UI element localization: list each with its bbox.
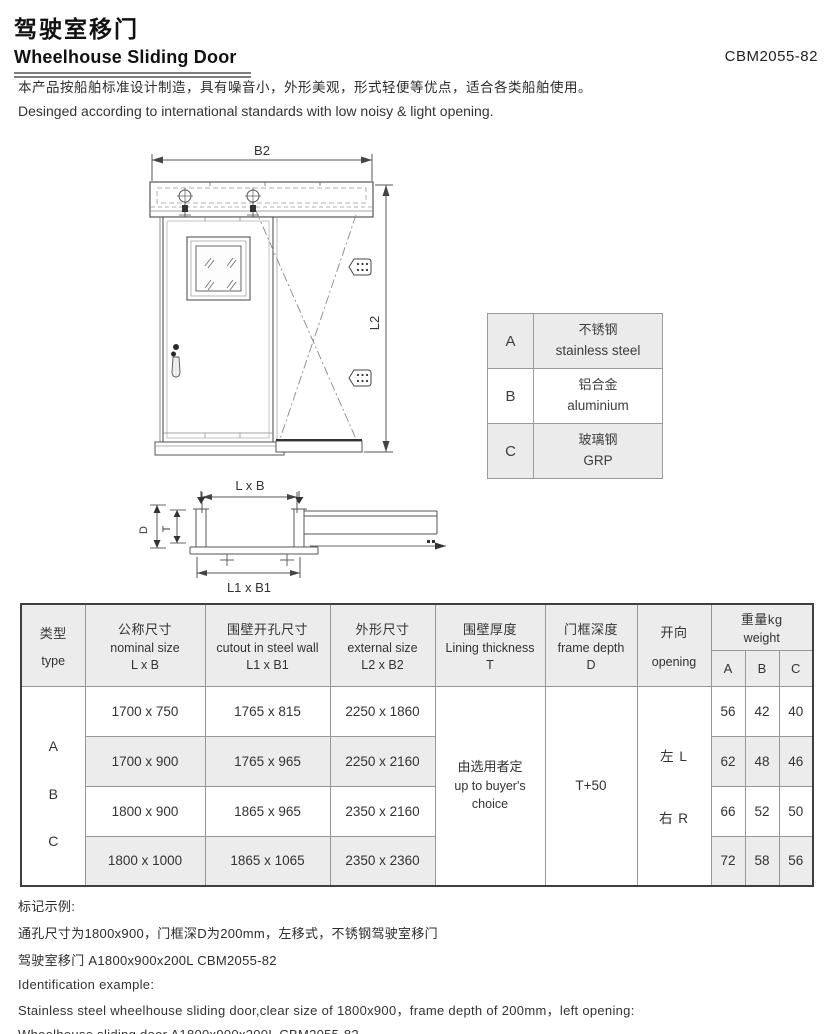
cell-external: 2250 x 1860 <box>330 686 435 736</box>
cell-nominal: 1800 x 900 <box>85 786 205 836</box>
page-header: 驾驶室移门 Wheelhouse Sliding Door <box>14 10 251 78</box>
cell-weight-a: 56 <box>711 686 745 736</box>
frame-depth-cell: T+50 <box>545 686 637 886</box>
note-en-title: Identification example: <box>18 977 818 992</box>
cell-weight-c: 46 <box>779 736 813 786</box>
spec-row-1: A B C 1700 x 750 1765 x 815 2250 x 1860 … <box>21 686 813 736</box>
b2-label: B2 <box>254 145 270 158</box>
cell-weight-b: 58 <box>745 836 779 886</box>
col-header-opening: 开向 opening <box>637 604 711 686</box>
note-zh-line1: 通孔尺寸为1800x900，门框深D为200mm，左移式，不锈钢驾驶室移门 <box>18 923 818 942</box>
cell-weight-b: 42 <box>745 686 779 736</box>
material-row-b: B 铝合金 aluminium <box>488 369 663 424</box>
col-header-weight: 重量kg weight <box>711 604 813 650</box>
col-header-nominal: 公称尺寸 nominal size L x B <box>85 604 205 686</box>
material-key: A <box>488 314 534 369</box>
col-header-weight-a: A <box>711 650 745 686</box>
b2-dimension <box>152 154 372 181</box>
lxb-label: L x B <box>235 478 264 493</box>
cell-external: 2350 x 2160 <box>330 786 435 836</box>
spec-table: 类型 type 公称尺寸 nominal size L x B 围壁开孔尺寸 c… <box>20 603 814 887</box>
material-name-en: stainless steel <box>534 341 662 362</box>
material-name-zh: 不锈钢 <box>534 320 662 340</box>
d-label: D <box>138 526 150 534</box>
opening-left: 左 L <box>638 745 711 765</box>
material-row-a: A 不锈钢 stainless steel <box>488 314 663 369</box>
opening-right: 右 R <box>638 807 711 827</box>
material-name: 铝合金 aluminium <box>534 369 663 424</box>
cell-weight-b: 52 <box>745 786 779 836</box>
note-en-line2: Wheelhouse sliding door A1800x900x200L C… <box>18 1027 818 1034</box>
cell-weight-a: 66 <box>711 786 745 836</box>
lining-thickness-cell: 由选用者定 up to buyer's choice <box>435 686 545 886</box>
note-zh-line2: 驾驶室移门 A1800x900x200L CBM2055-82 <box>18 950 818 969</box>
cell-weight-a: 62 <box>711 736 745 786</box>
description-zh: 本产品按船舶标准设计制造，具有噪音小，外形美观，形式轻便等优点，适合各类船舶使用… <box>18 76 808 96</box>
type-c: C <box>22 833 85 849</box>
wall-clip <box>349 259 371 275</box>
material-name: 玻璃钢 GRP <box>534 424 663 479</box>
material-name: 不锈钢 stainless steel <box>534 314 663 369</box>
cell-weight-a: 72 <box>711 836 745 886</box>
type-column: A B C <box>21 686 85 886</box>
cell-weight-c: 50 <box>779 786 813 836</box>
cell-weight-c: 56 <box>779 836 813 886</box>
material-name-en: GRP <box>534 451 662 472</box>
cross-section: L x B <box>138 478 446 595</box>
product-description: 本产品按船舶标准设计制造，具有噪音小，外形美观，形式轻便等优点，适合各类船舶使用… <box>18 76 808 119</box>
cell-nominal: 1700 x 900 <box>85 736 205 786</box>
cell-cutout: 1865 x 1065 <box>205 836 330 886</box>
standard-code: CBM2055-82 <box>725 48 818 65</box>
material-key: C <box>488 424 534 479</box>
material-table: A 不锈钢 stainless steel B 铝合金 aluminium C … <box>487 313 663 479</box>
l1xb1-label: L1 x B1 <box>227 580 271 595</box>
page-title-en: Wheelhouse Sliding Door <box>14 47 251 68</box>
material-name-en: aluminium <box>534 396 662 417</box>
cell-weight-b: 48 <box>745 736 779 786</box>
material-row-c: C 玻璃钢 GRP <box>488 424 663 479</box>
material-key: B <box>488 369 534 424</box>
note-zh-title: 标记示例: <box>18 896 818 915</box>
wall-clip <box>349 370 371 386</box>
material-name-zh: 玻璃钢 <box>534 430 662 450</box>
identification-example: 标记示例: 通孔尺寸为1800x900，门框深D为200mm，左移式，不锈钢驾驶… <box>18 896 818 1034</box>
type-a: A <box>22 738 85 754</box>
cell-nominal: 1800 x 1000 <box>85 836 205 886</box>
t-label: T <box>161 525 173 532</box>
cell-external: 2350 x 2360 <box>330 836 435 886</box>
col-header-type: 类型 type <box>21 604 85 686</box>
door-window <box>187 237 250 300</box>
catalog-page: 驾驶室移门 Wheelhouse Sliding Door CBM2055-82… <box>0 0 830 1034</box>
col-header-external: 外形尺寸 external size L2 x B2 <box>330 604 435 686</box>
cell-cutout: 1765 x 965 <box>205 736 330 786</box>
col-header-frame: 门框深度 frame depth D <box>545 604 637 686</box>
page-title-zh: 驾驶室移门 <box>14 10 251 44</box>
l2-label: L2 <box>367 316 382 330</box>
cell-nominal: 1700 x 750 <box>85 686 205 736</box>
col-header-weight-b: B <box>745 650 779 686</box>
col-header-cutout: 围壁开孔尺寸 cutout in steel wall L1 x B1 <box>205 604 330 686</box>
description-en: Desinged according to international stan… <box>18 103 808 119</box>
col-header-weight-c: C <box>779 650 813 686</box>
cell-external: 2250 x 2160 <box>330 736 435 786</box>
technical-drawing: B2 <box>0 145 830 605</box>
opening-cell: 左 L 右 R <box>637 686 711 886</box>
note-en-line1: Stainless steel wheelhouse sliding door,… <box>18 1000 818 1019</box>
material-name-zh: 铝合金 <box>534 375 662 395</box>
cell-cutout: 1865 x 965 <box>205 786 330 836</box>
type-b: B <box>22 786 85 802</box>
cell-weight-c: 40 <box>779 686 813 736</box>
cell-cutout: 1765 x 815 <box>205 686 330 736</box>
col-header-lining: 围壁厚度 Lining thickness T <box>435 604 545 686</box>
